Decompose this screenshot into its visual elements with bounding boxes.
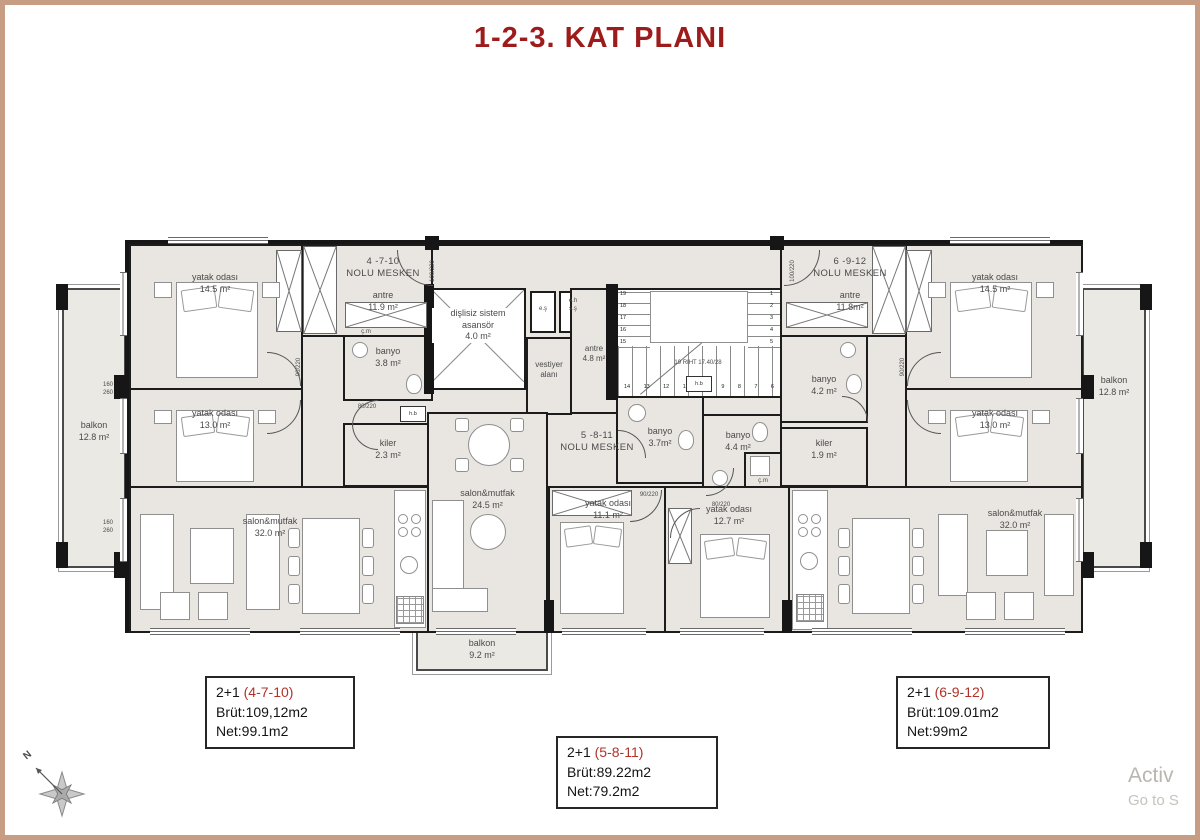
door-size-label: 90/220	[296, 352, 304, 382]
label-left-salon: salon&mutfak 32.0 m²	[190, 516, 350, 539]
window	[562, 628, 646, 635]
sink	[840, 342, 856, 358]
coffee-table	[470, 514, 506, 550]
chair	[455, 458, 469, 472]
info-box-right: 2+1 (6-9-12) Brüt:109.01m2 Net:99m2	[896, 676, 1050, 749]
net-area: Net:99.1m2	[216, 722, 344, 742]
chair	[510, 458, 524, 472]
stove-burner	[398, 514, 408, 524]
chair	[288, 556, 300, 576]
sofa	[432, 500, 464, 590]
unit-number: (4-7-10)	[244, 684, 294, 700]
chair	[838, 528, 850, 548]
label-center-salon: salon&mutfak 24.5 m²	[430, 488, 545, 511]
stair-note: 19 RIHT 17.40/28	[638, 360, 758, 368]
kitchen-grill	[396, 596, 424, 624]
bed	[560, 522, 624, 614]
chair	[362, 584, 374, 604]
sink	[628, 404, 646, 422]
pillow	[704, 537, 735, 560]
wall-pier	[56, 284, 68, 310]
sofa	[432, 588, 488, 612]
window	[150, 628, 250, 635]
info-box-center: 2+1 (5-8-11) Brüt:89.22m2 Net:79.2m2	[556, 736, 718, 809]
unit-type: 2+1	[567, 744, 591, 760]
label-right-kiler: kiler 1.9 m²	[788, 438, 860, 461]
label-right-balkon: balkon 12.8 m²	[1084, 375, 1144, 398]
label-right-antre: antre 11.8m²	[800, 290, 900, 313]
kitchen-sink	[400, 556, 418, 574]
chair	[838, 584, 850, 604]
wall-pier	[606, 284, 618, 400]
label-right-bed1: yatak odası 14.5 m²	[925, 272, 1065, 295]
kitchen-grill	[796, 594, 824, 622]
label-center-bed1: yatak odası 11.1 m²	[556, 498, 660, 521]
gross-area: Brüt:89.22m2	[567, 763, 707, 783]
closet-hatch	[303, 246, 337, 334]
chair	[838, 556, 850, 576]
unit-number: (5-8-11)	[595, 744, 644, 760]
watermark-line1: Activ	[1128, 764, 1174, 788]
label-left-kiler: kiler 2.3 m²	[346, 438, 430, 461]
door-size-label: 100/220	[790, 256, 798, 286]
unit-type: 2+1	[907, 684, 931, 700]
window-size-label: 160 260	[98, 382, 118, 398]
label-right-salon: salon&mutfak 32.0 m²	[950, 508, 1080, 531]
unit-number: (6-9-12)	[935, 684, 985, 700]
label-center-cm: ç.m	[746, 478, 780, 486]
chair	[912, 556, 924, 576]
door-size-label: 100/220	[430, 256, 438, 286]
stove-burner	[798, 527, 808, 537]
wall-pier	[782, 600, 792, 633]
door-size-label: 80/220	[706, 502, 736, 510]
toilet	[406, 374, 422, 394]
pillow	[564, 525, 593, 548]
window	[168, 237, 268, 244]
window	[965, 628, 1065, 635]
chair	[912, 584, 924, 604]
floor-plan-canvas: 1-2-3. KAT PLANI 1918171615 12345 141312…	[0, 0, 1200, 840]
gross-area: Brüt:109.01m2	[907, 703, 1039, 723]
bed	[176, 282, 258, 378]
label-elevator: dişlisiz sistem asansör 4.0 m²	[432, 308, 524, 343]
armchair	[160, 592, 190, 620]
stove-burner	[411, 527, 421, 537]
balcony-right	[1082, 288, 1146, 568]
stair-numbers-left: 1918171615	[620, 291, 630, 345]
gross-area: Brüt:109,12m2	[216, 703, 344, 723]
label-left-cm: ç.m	[348, 329, 384, 337]
stove-burner	[398, 527, 408, 537]
wall-pier	[1140, 284, 1152, 310]
window	[1076, 398, 1083, 454]
wall-pier	[56, 542, 68, 568]
stair-landing	[650, 291, 748, 343]
window-size-label: 160 260	[98, 520, 118, 536]
stove-burner	[798, 514, 808, 524]
window	[680, 628, 764, 635]
bed	[950, 282, 1032, 378]
chair	[455, 418, 469, 432]
chair	[362, 556, 374, 576]
coffee-table	[986, 530, 1028, 576]
washing-machine	[750, 456, 770, 476]
dining-table	[852, 518, 910, 614]
label-shaft-eh: e.h s.ş	[560, 298, 586, 314]
window	[300, 628, 400, 635]
window	[950, 237, 1050, 244]
sink	[712, 470, 728, 486]
wall-pier	[544, 600, 554, 633]
unit-type: 2+1	[216, 684, 240, 700]
page-title: 1-2-3. KAT PLANI	[0, 22, 1200, 55]
label-right-banyo: banyo 4.2 m²	[788, 374, 860, 397]
info-box-left: 2+1 (4-7-10) Brüt:109,12m2 Net:99.1m2	[205, 676, 355, 749]
chair	[912, 528, 924, 548]
armchair	[966, 592, 996, 620]
door-size-label: 90/220	[900, 352, 908, 382]
chair	[362, 528, 374, 548]
wall-pier	[770, 236, 784, 250]
label-center-banyo1: banyo 3.7m²	[630, 426, 690, 449]
label-left-banyo: banyo 3.8 m²	[346, 346, 430, 369]
door-size-label: 90/220	[634, 492, 664, 500]
pillow	[736, 537, 767, 560]
wall-pier	[425, 236, 439, 250]
label-left-bed2: yatak odası 13.0 m²	[150, 408, 280, 431]
unit-label-left: 4 -7-10 NOLU MESKEN	[333, 256, 433, 281]
window	[1076, 272, 1083, 336]
hb-box: h.b	[400, 406, 426, 422]
stove-burner	[811, 527, 821, 537]
label-right-bed2: yatak odası 13.0 m²	[925, 408, 1065, 431]
balcony-door	[436, 628, 516, 635]
pillow	[593, 525, 622, 548]
compass-rose: N	[18, 748, 98, 828]
window	[812, 628, 912, 635]
label-bottom-balkon: balkon 9.2 m²	[420, 638, 544, 661]
label-left-balkon: balkon 12.8 m²	[63, 420, 125, 443]
armchair	[198, 592, 228, 620]
bed	[700, 534, 770, 618]
label-left-antre: antre 11.9 m²	[333, 290, 433, 313]
label-center-banyo2: banyo 4.4 m²	[702, 430, 774, 453]
stove-burner	[811, 514, 821, 524]
unit-label-right: 6 -9-12 NOLU MESKEN	[800, 256, 900, 281]
armchair	[1004, 592, 1034, 620]
round-dining-table	[468, 424, 510, 466]
wall-pier	[1140, 542, 1152, 568]
net-area: Net:79.2m2	[567, 782, 707, 802]
window	[120, 272, 127, 336]
hb-box: h.b	[686, 376, 712, 392]
chair	[288, 584, 300, 604]
net-area: Net:99m2	[907, 722, 1039, 742]
label-shaft-es: e.ş	[531, 306, 555, 314]
balcony-door	[120, 498, 127, 562]
label-left-bed1: yatak odası 14.5 m²	[150, 272, 280, 295]
chair	[510, 418, 524, 432]
kitchen-sink	[800, 552, 818, 570]
watermark-line2: Go to S	[1128, 792, 1179, 809]
stair-numbers-right: 12345	[770, 291, 780, 345]
door-size-label: 80/220	[352, 404, 382, 412]
label-center-antre: antre 4.8 m²	[566, 344, 622, 365]
stove-burner	[411, 514, 421, 524]
